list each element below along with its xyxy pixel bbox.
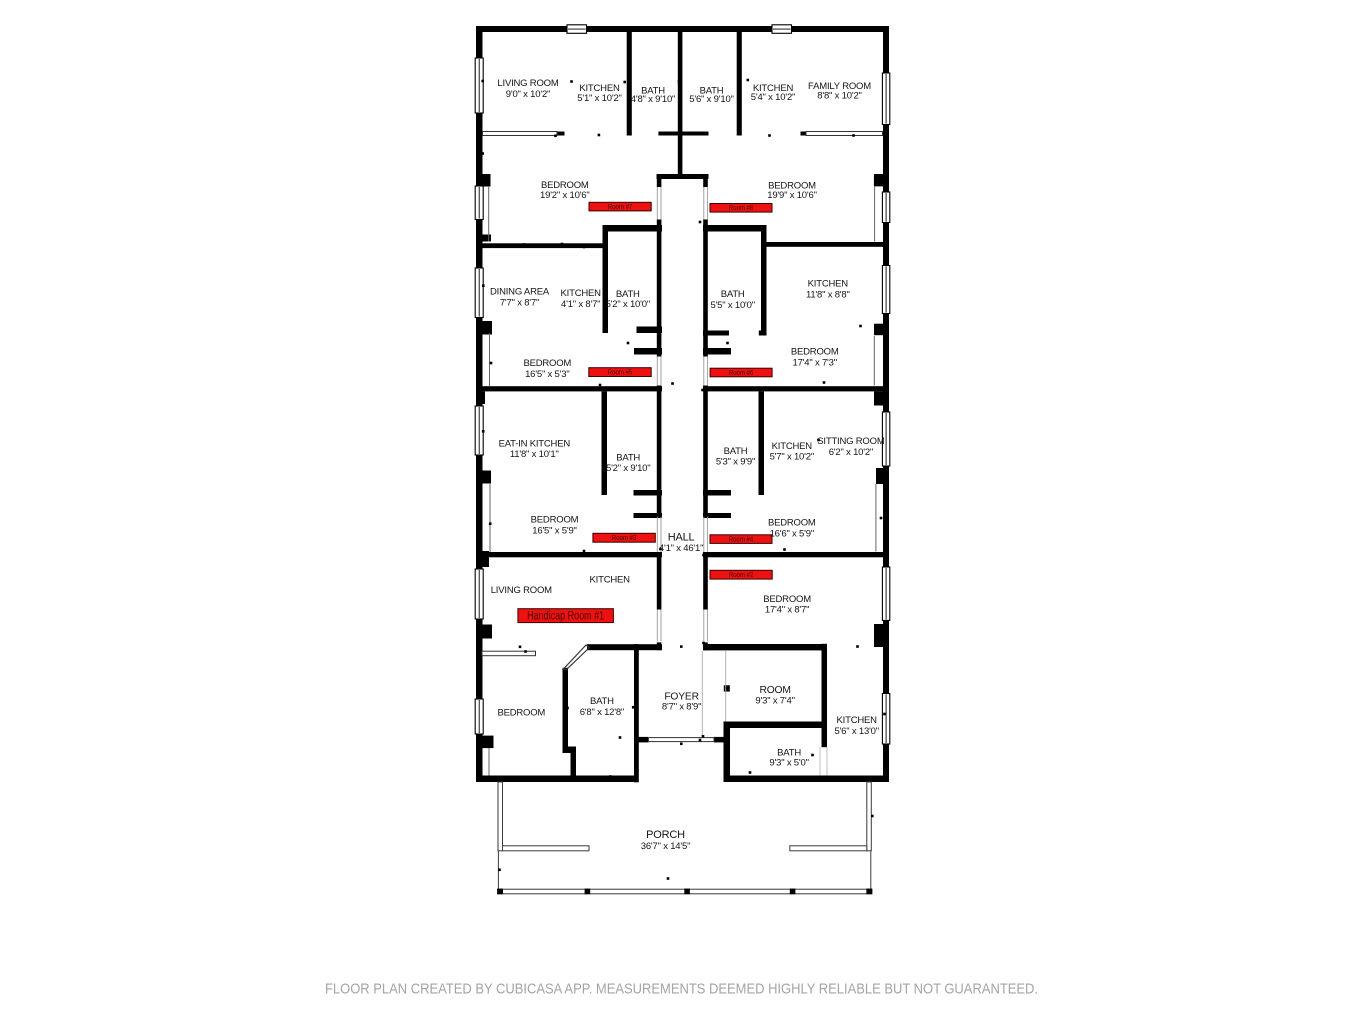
svg-text:4'1" x 46'1": 4'1" x 46'1" (659, 543, 703, 554)
svg-text:4'1" x 8'7": 4'1" x 8'7" (561, 299, 600, 310)
svg-text:4'8" x 9'10": 4'8" x 9'10" (631, 94, 675, 105)
svg-text:9'3" x 5'0": 9'3" x 5'0" (769, 758, 808, 769)
svg-text:9'3" x 7'4": 9'3" x 7'4" (755, 695, 794, 706)
svg-text:BEDROOM: BEDROOM (497, 708, 545, 719)
svg-text:9'0" x 10'2": 9'0" x 10'2" (506, 89, 550, 100)
svg-text:FLOOR PLAN CREATED BY CUBICASA: FLOOR PLAN CREATED BY CUBICASA APP. MEAS… (325, 980, 1038, 997)
svg-text:BEDROOM: BEDROOM (523, 358, 571, 369)
svg-text:5'7" x 10'2": 5'7" x 10'2" (770, 451, 814, 462)
svg-text:SITTING ROOM: SITTING ROOM (817, 436, 885, 447)
svg-text:5'2" x 10'0": 5'2" x 10'0" (606, 299, 650, 310)
svg-text:11'8" x 8'8": 11'8" x 8'8" (806, 290, 850, 301)
svg-text:Room #8: Room #8 (729, 205, 754, 212)
svg-text:PORCH: PORCH (646, 829, 685, 841)
svg-text:5'2" x 9'10": 5'2" x 9'10" (606, 463, 650, 474)
svg-text:EAT-IN KITCHEN: EAT-IN KITCHEN (499, 439, 571, 450)
svg-text:BATH: BATH (590, 696, 614, 707)
svg-text:LIVING ROOM: LIVING ROOM (497, 78, 558, 89)
svg-text:FOYER: FOYER (664, 691, 698, 702)
svg-text:BATH: BATH (616, 452, 640, 463)
svg-text:5'5" x 10'0": 5'5" x 10'0" (710, 300, 754, 311)
svg-text:5'1" x 10'2": 5'1" x 10'2" (577, 93, 621, 104)
svg-text:8'8" x 10'2": 8'8" x 10'2" (817, 90, 861, 101)
svg-text:LIVING ROOM: LIVING ROOM (491, 585, 552, 596)
svg-text:5'3" x 9'9": 5'3" x 9'9" (716, 456, 755, 467)
svg-text:Room #4: Room #4 (729, 537, 754, 544)
svg-text:KITCHEN: KITCHEN (837, 715, 878, 726)
svg-text:KITCHEN: KITCHEN (808, 279, 849, 290)
svg-text:KITCHEN: KITCHEN (561, 288, 602, 299)
svg-text:36'7" x 14'5": 36'7" x 14'5" (641, 841, 691, 852)
svg-text:DINING AREA: DINING AREA (490, 287, 550, 298)
svg-text:BATH: BATH (721, 289, 745, 300)
svg-text:KITCHEN: KITCHEN (772, 441, 813, 452)
svg-text:BATH: BATH (616, 289, 640, 300)
svg-text:Room #7: Room #7 (608, 204, 633, 211)
svg-text:5'6" x 9'10": 5'6" x 9'10" (689, 94, 733, 105)
svg-text:Room #6: Room #6 (729, 370, 754, 377)
svg-text:BEDROOM: BEDROOM (768, 518, 816, 529)
svg-text:Room #3: Room #3 (612, 535, 637, 542)
svg-text:BEDROOM: BEDROOM (763, 594, 811, 605)
svg-text:Handicap Room #1: Handicap Room #1 (527, 611, 604, 623)
svg-text:Room #5: Room #5 (608, 370, 633, 377)
svg-text:6'8" x 12'8": 6'8" x 12'8" (580, 707, 624, 718)
svg-text:BEDROOM: BEDROOM (791, 346, 839, 357)
svg-text:7'7" x 8'7": 7'7" x 8'7" (500, 298, 539, 309)
svg-text:ROOM: ROOM (759, 685, 790, 696)
svg-text:17'4" x 8'7": 17'4" x 8'7" (765, 604, 809, 615)
svg-text:19'2" x 10'6": 19'2" x 10'6" (540, 190, 590, 201)
svg-text:5'4" x 10'2": 5'4" x 10'2" (751, 92, 795, 103)
svg-text:16'5" x 5'9": 16'5" x 5'9" (532, 525, 576, 536)
svg-text:KITCHEN: KITCHEN (590, 575, 631, 586)
svg-text:Room #2: Room #2 (729, 572, 754, 579)
svg-text:16'5" x 5'3": 16'5" x 5'3" (525, 369, 569, 380)
svg-text:16'6" x 5'9": 16'6" x 5'9" (770, 529, 814, 540)
svg-text:BEDROOM: BEDROOM (531, 514, 579, 525)
svg-text:8'7" x 8'9": 8'7" x 8'9" (662, 702, 701, 713)
svg-text:19'9" x 10'6": 19'9" x 10'6" (767, 190, 817, 201)
svg-text:6'2" x 10'2": 6'2" x 10'2" (829, 447, 873, 458)
svg-text:17'4" x 7'3": 17'4" x 7'3" (792, 358, 836, 369)
svg-text:BATH: BATH (724, 446, 748, 457)
svg-text:11'8" x 10'1": 11'8" x 10'1" (510, 449, 559, 460)
svg-text:HALL: HALL (668, 531, 695, 543)
svg-text:5'6" x 13'0": 5'6" x 13'0" (834, 726, 878, 737)
